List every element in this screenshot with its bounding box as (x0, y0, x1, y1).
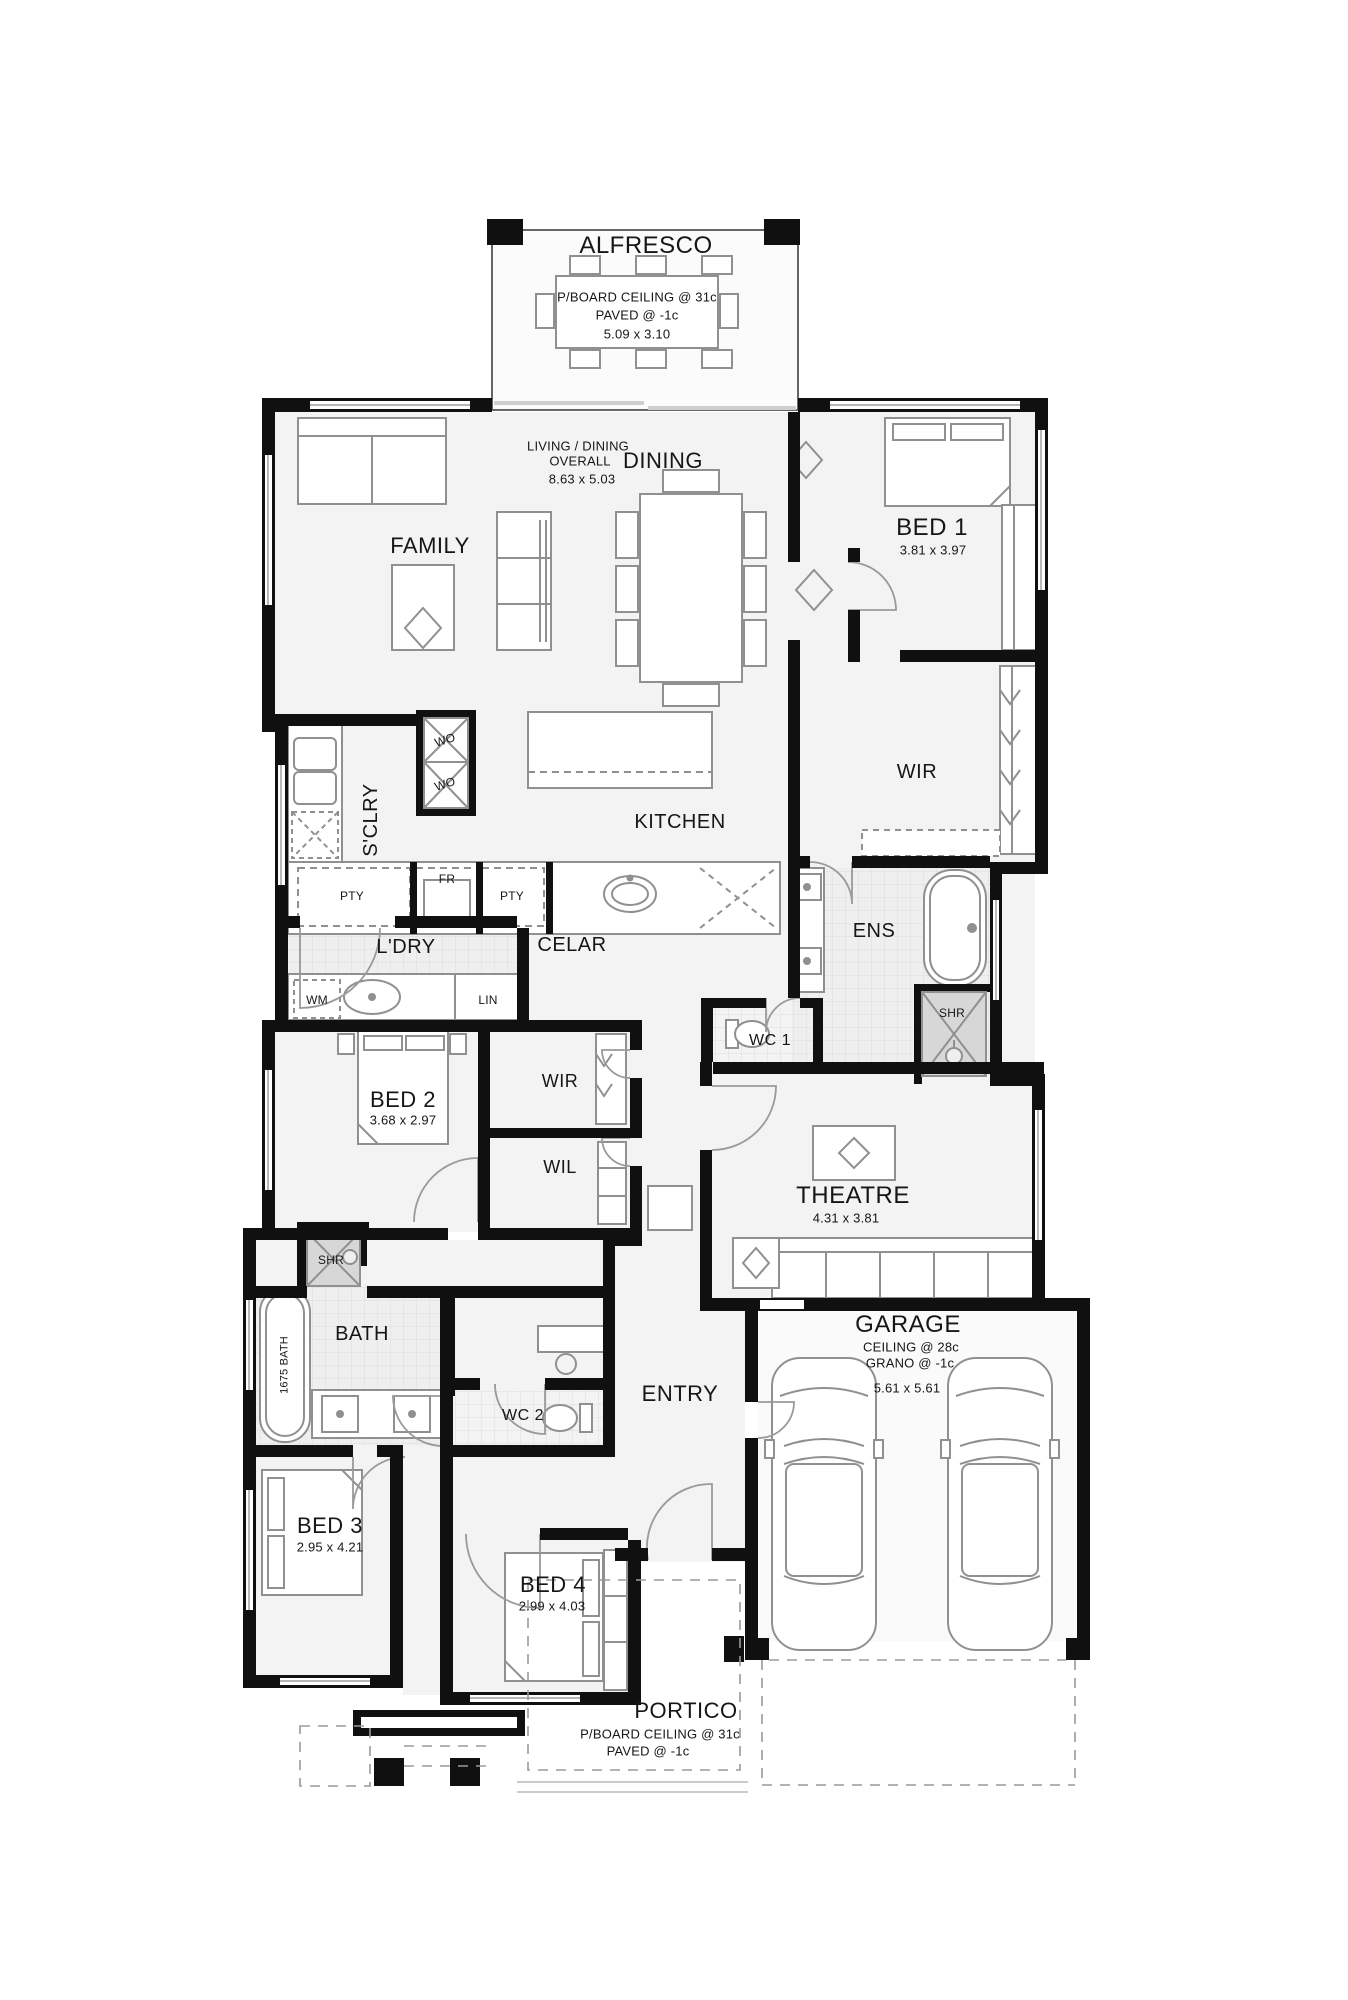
room-label-scullery: S'CLRY (361, 783, 381, 856)
room-label-laundry: L'DRY (376, 937, 435, 957)
theatre-dimension: 4.31 x 3.81 (813, 1212, 880, 1225)
linen-label: LIN (478, 994, 497, 1006)
room-label-bed1: BED 1 (896, 516, 968, 540)
room-label-bed4: BED 4 (520, 1574, 586, 1596)
fridge-label: FR (439, 873, 455, 885)
room-label-dining: DINING (623, 450, 703, 472)
room-label-bath: BATH (335, 1324, 389, 1344)
room-label-wir-main: WIR (897, 762, 937, 782)
room-label-cellar: CELAR (537, 935, 606, 955)
garage-floor-note: GRANO @ -1c (866, 1357, 954, 1370)
portico-floor-note: PAVED @ -1c (607, 1745, 690, 1758)
pantry-label-1: PTY (340, 890, 364, 902)
room-label-ens: ENS (853, 921, 896, 941)
living-dining-label-2: OVERALL (549, 455, 610, 468)
room-label-kitchen: KITCHEN (634, 812, 725, 832)
room-label-portico: PORTICO (634, 1700, 737, 1722)
garage-car-right (941, 1358, 1059, 1650)
alfresco-ceiling-note: P/BOARD CEILING @ 31c (557, 291, 717, 304)
garage-dimension: 5.61 x 5.61 (874, 1382, 941, 1395)
pantry-label-2: PTY (500, 890, 524, 902)
room-label-wc1: WC 1 (749, 1033, 791, 1049)
washing-machine-label: WM (306, 994, 328, 1006)
alfresco-dimension: 5.09 x 3.10 (604, 328, 671, 341)
room-label-entry: ENTRY (642, 1383, 719, 1405)
room-label-alfresco: ALFRESCO (579, 234, 712, 258)
bath-tub-label: 1675 BATH (280, 1336, 291, 1394)
room-label-wc2: WC 2 (502, 1408, 544, 1424)
room-label-theatre: THEATRE (796, 1184, 910, 1208)
shower-ens-label: SHR (939, 1007, 965, 1019)
bed2-dimension: 3.68 x 2.97 (370, 1114, 437, 1127)
garage-ceiling-note: CEILING @ 28c (863, 1341, 959, 1354)
room-label-garage: GARAGE (855, 1313, 961, 1337)
living-dining-label-1: LIVING / DINING (527, 440, 629, 453)
shower-bath-label: SHR (318, 1254, 344, 1266)
room-label-bed3: BED 3 (297, 1515, 363, 1537)
room-label-wir2: WIR (542, 1072, 579, 1090)
bed4-furniture (505, 1550, 627, 1690)
floor-plan: ALFRESCO P/BOARD CEILING @ 31c PAVED @ -… (0, 0, 1348, 2000)
living-dining-dimension: 8.63 x 5.03 (549, 473, 616, 486)
room-label-bed2: BED 2 (370, 1089, 436, 1111)
portico-ceiling-note: P/BOARD CEILING @ 31c (580, 1728, 740, 1741)
bed4-dimension: 2.99 x 4.03 (519, 1600, 586, 1613)
porch-lines (517, 1782, 748, 1792)
room-label-family: FAMILY (390, 535, 470, 557)
bed3-dimension: 2.95 x 4.21 (297, 1541, 364, 1554)
room-label-wil: WIL (543, 1158, 577, 1176)
alfresco-floor-note: PAVED @ -1c (596, 309, 679, 322)
bed1-dimension: 3.81 x 3.97 (900, 544, 967, 557)
